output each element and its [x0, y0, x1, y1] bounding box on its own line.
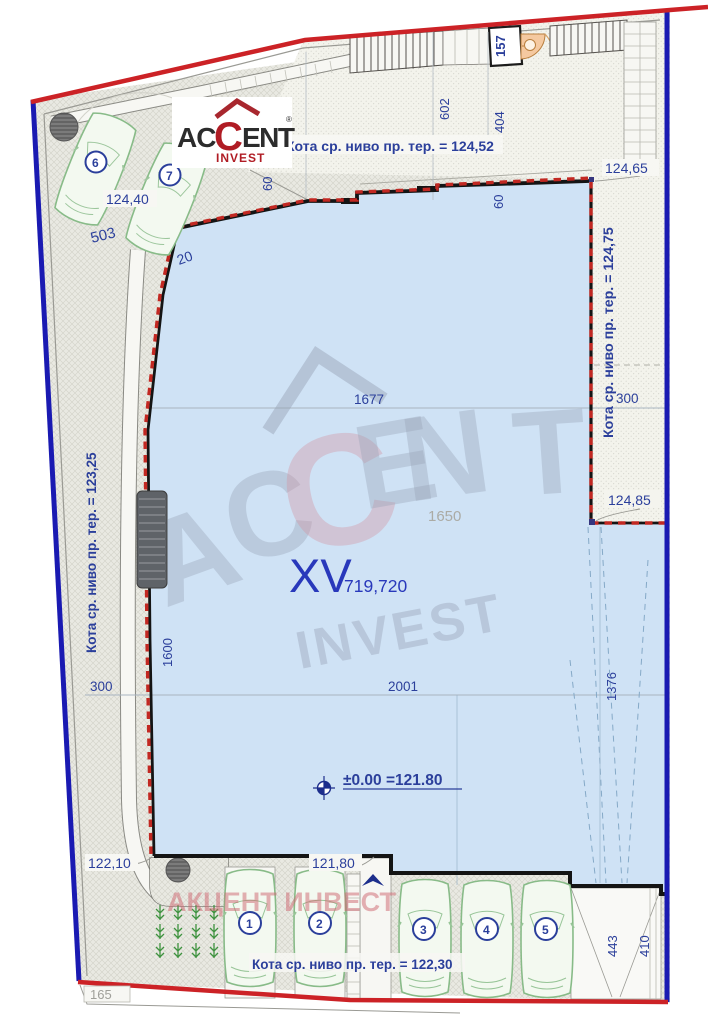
svg-text:443: 443	[605, 935, 620, 957]
svg-text:АКЦЕНТ ИНВЕСТ: АКЦЕНТ ИНВЕСТ	[167, 887, 396, 917]
svg-text:300: 300	[90, 679, 113, 694]
svg-text:AC: AC	[177, 122, 216, 153]
svg-text:124,65: 124,65	[605, 160, 648, 176]
svg-text:122,10: 122,10	[88, 855, 131, 871]
svg-text:1600: 1600	[160, 638, 175, 667]
svg-text:ENT: ENT	[242, 122, 295, 153]
svg-text:T: T	[508, 383, 590, 522]
svg-text:602: 602	[437, 98, 452, 120]
svg-text:±0.00 =121.80: ±0.00 =121.80	[343, 772, 442, 789]
svg-text:N: N	[393, 383, 497, 528]
svg-text:INVEST: INVEST	[216, 151, 265, 165]
svg-text:60: 60	[491, 195, 506, 209]
svg-text:1376: 1376	[604, 672, 619, 701]
svg-text:1677: 1677	[354, 392, 384, 407]
svg-text:6: 6	[92, 156, 99, 170]
svg-text:Кота ср. ниво пр. тер. = 124,5: Кота ср. ниво пр. тер. = 124,52	[286, 138, 494, 154]
svg-text:Кота ср. ниво пр. тер. = 123,2: Кота ср. ниво пр. тер. = 123,25	[84, 452, 99, 653]
svg-text:404: 404	[492, 111, 507, 133]
svg-text:1: 1	[246, 917, 253, 931]
svg-text:719,720: 719,720	[344, 576, 408, 596]
svg-text:2: 2	[316, 917, 323, 931]
svg-text:3: 3	[420, 923, 427, 937]
svg-text:124,40: 124,40	[106, 191, 149, 207]
svg-text:121,80: 121,80	[312, 855, 355, 871]
svg-text:Кота ср. ниво пр. тер. = 122,3: Кота ср. ниво пр. тер. = 122,30	[252, 957, 453, 972]
svg-text:7: 7	[166, 169, 173, 183]
svg-text:1650: 1650	[428, 508, 461, 525]
svg-text:165: 165	[90, 987, 112, 1002]
svg-text:157: 157	[493, 35, 508, 57]
svg-text:124,85: 124,85	[608, 492, 651, 508]
svg-text:300: 300	[616, 391, 639, 406]
svg-text:4: 4	[483, 923, 490, 937]
svg-text:®: ®	[286, 115, 292, 124]
svg-text:XV: XV	[289, 549, 352, 602]
svg-text:5: 5	[542, 923, 549, 937]
svg-text:60: 60	[260, 177, 275, 191]
svg-text:Кота ср. ниво пр. тер. = 124,7: Кота ср. ниво пр. тер. = 124,75	[601, 227, 617, 438]
svg-text:2001: 2001	[388, 679, 418, 694]
svg-text:410: 410	[637, 935, 652, 957]
